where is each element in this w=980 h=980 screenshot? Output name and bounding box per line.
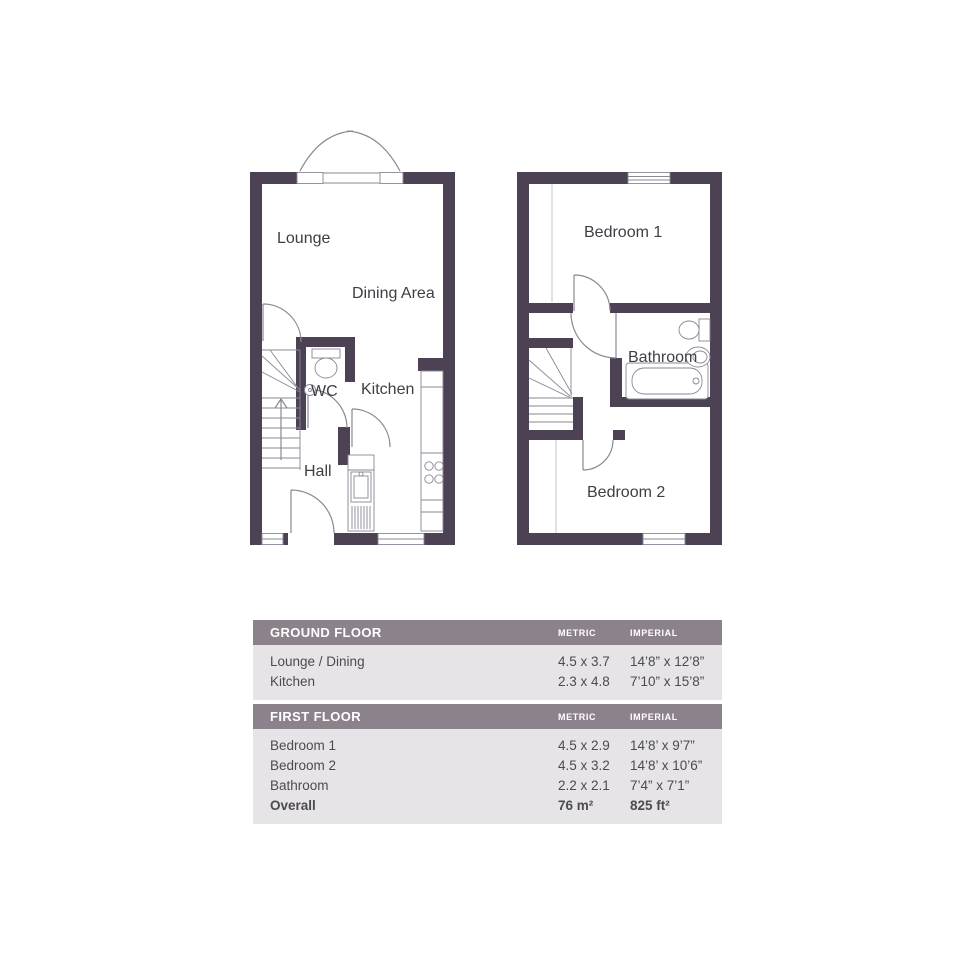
room-label-lounge: Lounge bbox=[277, 230, 330, 247]
metric-cell: 2.3 x 4.8 bbox=[558, 672, 610, 692]
imperial-cell: 14’8” x 12’8” bbox=[630, 652, 704, 672]
bedroom1-door bbox=[574, 275, 610, 311]
first-floor-header-row: FIRST FLOOR METRIC IMPERIAL bbox=[253, 704, 722, 729]
metric-cell: 4.5 x 2.9 bbox=[558, 736, 610, 756]
stairs-icon bbox=[529, 348, 573, 422]
sink-unit-icon bbox=[348, 455, 374, 531]
metric-column-header: METRIC bbox=[558, 704, 596, 730]
room-name-cell: Bedroom 1 bbox=[270, 736, 336, 756]
room-name-cell: Bedroom 2 bbox=[270, 756, 336, 776]
table-section-ground-floor: GROUND FLOOR METRIC IMPERIAL Lounge / Di… bbox=[253, 620, 722, 700]
imperial-cell: 14’8’ x 9’7” bbox=[630, 736, 695, 756]
room-name-cell: Kitchen bbox=[270, 672, 315, 692]
table-row: Kitchen 2.3 x 4.8 7’10” x 15’8” bbox=[253, 672, 722, 692]
table-row-overall: Overall 76 m² 825 ft² bbox=[253, 796, 722, 816]
kitchen-door bbox=[352, 409, 390, 447]
table-row: Bedroom 1 4.5 x 2.9 14’8’ x 9’7” bbox=[253, 736, 722, 756]
imperial-cell: 825 ft² bbox=[630, 796, 670, 816]
section-title: GROUND FLOOR bbox=[270, 620, 382, 645]
imperial-column-header: IMPERIAL bbox=[630, 704, 678, 730]
bedroom2-door bbox=[583, 440, 613, 470]
toilet-icon bbox=[312, 349, 340, 378]
metric-cell: 2.2 x 2.1 bbox=[558, 776, 610, 796]
room-label-kitchen: Kitchen bbox=[361, 381, 414, 398]
bath-icon bbox=[626, 363, 708, 399]
ground-floor-plan: Lounge Dining Area WC Kitchen Hall bbox=[250, 131, 455, 545]
lounge-door bbox=[263, 304, 301, 342]
room-label-bedroom2: Bedroom 2 bbox=[587, 484, 665, 501]
room-label-dining: Dining Area bbox=[352, 285, 435, 302]
metric-cell: 4.5 x 3.2 bbox=[558, 756, 610, 776]
toilet-icon bbox=[679, 319, 710, 341]
table-row: Bedroom 2 4.5 x 3.2 14’8’ x 10’6” bbox=[253, 756, 722, 776]
floor-plans-drawing: Lounge Dining Area WC Kitchen Hall bbox=[0, 0, 980, 600]
metric-cell: 76 m² bbox=[558, 796, 593, 816]
ground-floor-header-row: GROUND FLOOR METRIC IMPERIAL bbox=[253, 620, 722, 645]
bathroom-door bbox=[571, 313, 616, 358]
room-label-bedroom1: Bedroom 1 bbox=[584, 224, 662, 241]
imperial-column-header: IMPERIAL bbox=[630, 620, 678, 646]
room-label-hall: Hall bbox=[304, 463, 332, 480]
stairs-icon bbox=[262, 350, 300, 470]
dimensions-table: GROUND FLOOR METRIC IMPERIAL Lounge / Di… bbox=[253, 620, 722, 824]
front-door bbox=[291, 490, 334, 533]
table-row: Bathroom 2.2 x 2.1 7’4” x 7’1” bbox=[253, 776, 722, 796]
room-name-cell: Bathroom bbox=[270, 776, 329, 796]
first-floor-rows: Bedroom 1 4.5 x 2.9 14’8’ x 9’7” Bedroom… bbox=[253, 729, 722, 824]
imperial-cell: 7’4” x 7’1” bbox=[630, 776, 689, 796]
imperial-cell: 7’10” x 15’8” bbox=[630, 672, 704, 692]
room-label-wc: WC bbox=[311, 383, 338, 400]
imperial-cell: 14’8’ x 10’6” bbox=[630, 756, 702, 776]
ground-floor-rows: Lounge / Dining 4.5 x 3.7 14’8” x 12’8” … bbox=[253, 645, 722, 700]
floorplan-page: Lounge Dining Area WC Kitchen Hall bbox=[0, 0, 980, 980]
section-title: FIRST FLOOR bbox=[270, 704, 361, 729]
metric-cell: 4.5 x 3.7 bbox=[558, 652, 610, 672]
room-name-cell: Lounge / Dining bbox=[270, 652, 365, 672]
table-row: Lounge / Dining 4.5 x 3.7 14’8” x 12’8” bbox=[253, 652, 722, 672]
kitchen-counter bbox=[421, 371, 443, 531]
metric-column-header: METRIC bbox=[558, 620, 596, 646]
room-label-bathroom: Bathroom bbox=[628, 349, 697, 366]
table-section-first-floor: FIRST FLOOR METRIC IMPERIAL Bedroom 1 4.… bbox=[253, 704, 722, 824]
room-name-cell: Overall bbox=[270, 796, 316, 816]
first-floor-plan: Bedroom 1 Bathroom Bedroom 2 bbox=[517, 172, 722, 545]
french-doors bbox=[297, 131, 403, 184]
